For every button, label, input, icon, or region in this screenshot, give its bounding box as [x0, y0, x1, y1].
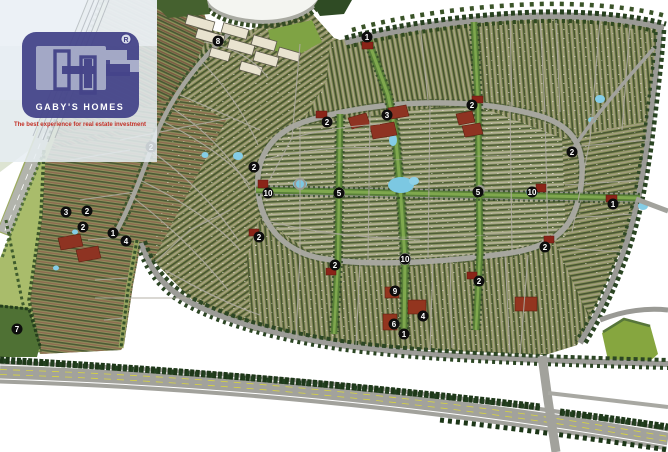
- svg-text:2: 2: [543, 243, 548, 252]
- svg-text:10: 10: [401, 255, 410, 264]
- svg-text:2: 2: [81, 223, 86, 232]
- svg-text:2: 2: [257, 233, 262, 242]
- svg-text:The best experience for real e: The best experience for real estate inve…: [14, 122, 146, 128]
- svg-text:5: 5: [476, 188, 481, 197]
- svg-text:7: 7: [15, 325, 20, 334]
- svg-text:1: 1: [111, 229, 116, 238]
- svg-text:4: 4: [421, 312, 426, 321]
- svg-text:1: 1: [365, 33, 370, 42]
- svg-text:2: 2: [570, 148, 575, 157]
- svg-text:3: 3: [64, 208, 69, 217]
- svg-text:R: R: [123, 37, 128, 44]
- svg-text:2: 2: [470, 101, 475, 110]
- svg-text:4: 4: [124, 237, 129, 246]
- svg-text:2: 2: [85, 207, 90, 216]
- svg-text:1: 1: [611, 200, 616, 209]
- svg-text:3: 3: [385, 111, 390, 120]
- svg-text:2: 2: [325, 118, 330, 127]
- svg-text:2: 2: [477, 277, 482, 286]
- svg-text:10: 10: [528, 188, 537, 197]
- svg-text:2: 2: [333, 261, 338, 270]
- svg-text:8: 8: [216, 37, 221, 46]
- svg-text:10: 10: [264, 189, 273, 198]
- svg-text:6: 6: [392, 320, 397, 329]
- svg-text:1: 1: [402, 330, 407, 339]
- svg-text:GABY'S HOMES: GABY'S HOMES: [36, 102, 125, 112]
- svg-text:2: 2: [252, 163, 257, 172]
- svg-text:5: 5: [337, 189, 342, 198]
- svg-text:9: 9: [393, 287, 398, 296]
